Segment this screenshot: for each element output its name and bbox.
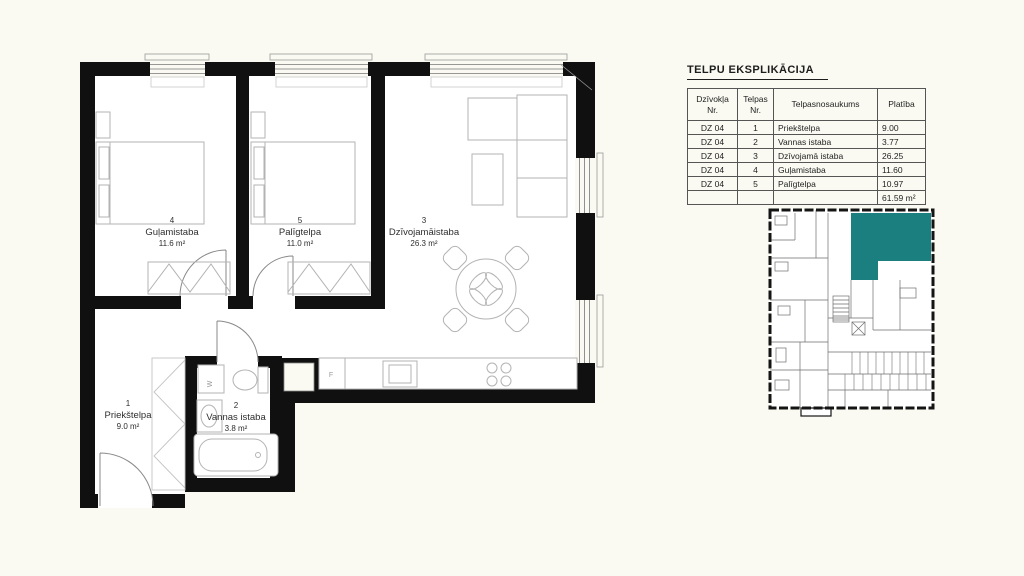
room-number: 1 [105,399,152,410]
washing-machine [198,365,224,393]
room-name: Guļamistaba [145,227,198,240]
toilet-tank [258,367,268,393]
sofa [517,95,567,217]
table-row: DZ 04 1 Priekštelpa 9.00 [688,121,926,135]
table-row: DZ 04 5 Palīgtelpa 10.97 [688,177,926,191]
cell-area: 3.77 [878,135,926,149]
fridge-label: F [329,372,333,379]
table-header-row: Dzīvokļa Nr. Telpas Nr. Telpasnosaukums … [688,89,926,121]
nightstand [96,112,110,138]
cell-area: 11.60 [878,163,926,177]
cell-empty [738,191,774,205]
coffee-table [472,154,503,205]
cell-room: 4 [738,163,774,177]
toilet [233,370,257,390]
cell-area: 9.00 [878,121,926,135]
bed [251,142,355,224]
sofa [468,98,518,140]
cell-room: 2 [738,135,774,149]
cell-apartment: DZ 04 [688,177,738,191]
pillow [254,147,264,179]
table-total-row: 61.59 m² [688,191,926,205]
room-label-living: 3 Dzīvojamāistaba 26.3 m² [389,216,459,250]
cell-name: Vannas istaba [774,135,878,149]
cell-apartment: DZ 04 [688,121,738,135]
table-row: DZ 04 4 Guļamistaba 11.60 [688,163,926,177]
cell-apartment: DZ 04 [688,149,738,163]
explication-title: TELPU EKSPLIKĀCIJA [687,64,828,80]
apartment-plan: W F [80,54,603,508]
room-label-utility: 5 Palīgtelpa 11.0 m² [279,216,321,250]
room-label-bathroom: 2 Vannas istaba 3.8 m² [206,401,266,435]
room-name: Priekštelpa [105,410,152,423]
cell-name: Priekštelpa [774,121,878,135]
room-name: Vannas istaba [206,412,266,425]
col-room: Telpas Nr. [738,89,774,121]
kitchen [319,358,577,389]
table-row: DZ 04 3 Dzīvojamā istaba 26.25 [688,149,926,163]
room-name: Dzīvojamāistaba [389,227,459,240]
room-number: 5 [279,216,321,227]
nightstand [251,112,265,138]
cell-room: 5 [738,177,774,191]
dining-table [456,259,516,319]
cell-empty [774,191,878,205]
room-number: 2 [206,401,266,412]
explication-table: Dzīvokļa Nr. Telpas Nr. Telpasnosaukums … [687,88,926,205]
room-area: 9.0 m² [105,422,152,433]
room-area: 3.8 m² [206,424,266,435]
cell-name: Palīgtelpa [774,177,878,191]
cell-name: Guļamistaba [774,163,878,177]
washer-label: W [207,380,214,387]
room-area: 26.3 m² [389,239,459,250]
pillow [254,185,264,217]
explication-panel: TELPU EKSPLIKĀCIJA Dzīvokļa Nr. Telpas N… [687,60,926,205]
cell-apartment: DZ 04 [688,163,738,177]
cell-area: 26.25 [878,149,926,163]
room-label-hall: 1 Priekštelpa 9.0 m² [105,399,152,433]
cell-room: 1 [738,121,774,135]
room-name: Palīgtelpa [279,227,321,240]
cell-empty [688,191,738,205]
cell-area: 10.97 [878,177,926,191]
bed [96,142,204,224]
col-name: Telpasnosaukums [774,89,878,121]
mini-plan [770,210,933,416]
duct-shaft [284,363,314,391]
cell-total-area: 61.59 m² [878,191,926,205]
col-apartment: Dzīvokļa Nr. [688,89,738,121]
room-area: 11.6 m² [145,239,198,250]
cell-room: 3 [738,149,774,163]
pillow [99,185,109,217]
cell-name: Dzīvojamā istaba [774,149,878,163]
col-area: Platība [878,89,926,121]
pillow [99,147,109,179]
table-row: DZ 04 2 Vannas istaba 3.77 [688,135,926,149]
room-label-bedroom: 4 Guļamistaba 11.6 m² [145,216,198,250]
page: W F [0,0,1024,576]
cell-apartment: DZ 04 [688,135,738,149]
room-number: 3 [389,216,459,227]
room-number: 4 [145,216,198,227]
kitchen-counter [319,358,577,389]
room-area: 11.0 m² [279,239,321,250]
